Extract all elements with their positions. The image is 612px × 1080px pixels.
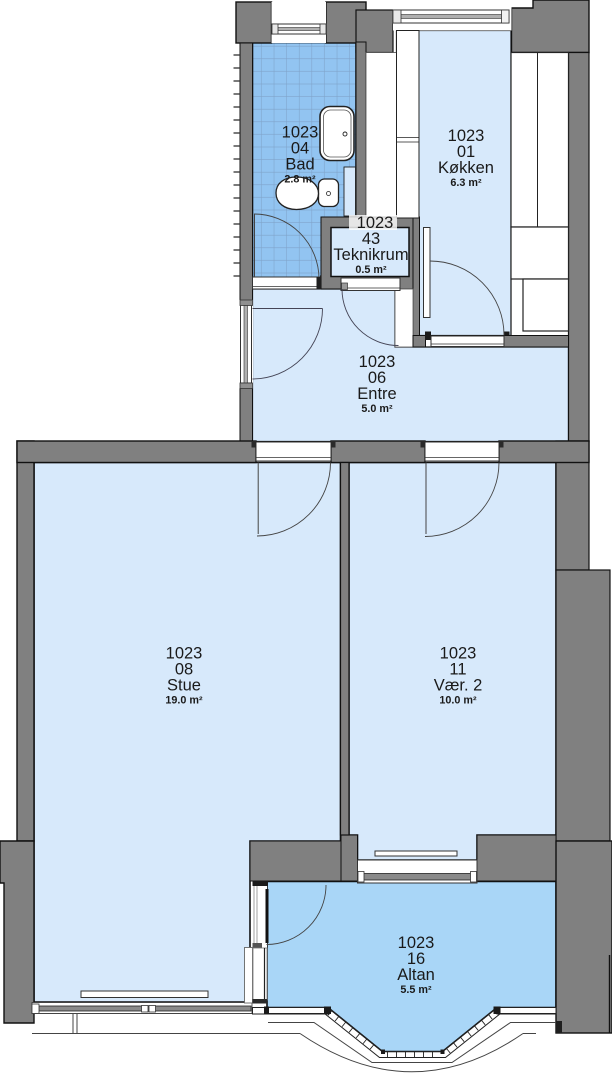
svg-text:10.0 m²: 10.0 m² [439,695,477,707]
svg-text:Bad: Bad [285,156,314,174]
svg-text:Vær. 2: Vær. 2 [434,677,483,695]
svg-text:Stue: Stue [167,677,201,695]
svg-text:Teknikrum: Teknikrum [333,246,408,264]
svg-text:Altan: Altan [397,966,435,984]
svg-text:Køkken: Køkken [438,159,494,177]
svg-text:Entre: Entre [357,385,396,403]
svg-text:0.5 m²: 0.5 m² [355,264,387,276]
svg-text:6.3 m²: 6.3 m² [450,177,482,189]
svg-text:19.0 m²: 19.0 m² [165,695,203,707]
svg-text:5.0 m²: 5.0 m² [361,403,393,415]
svg-text:2.8 m²: 2.8 m² [284,174,316,186]
svg-text:5.5 m²: 5.5 m² [400,984,432,996]
